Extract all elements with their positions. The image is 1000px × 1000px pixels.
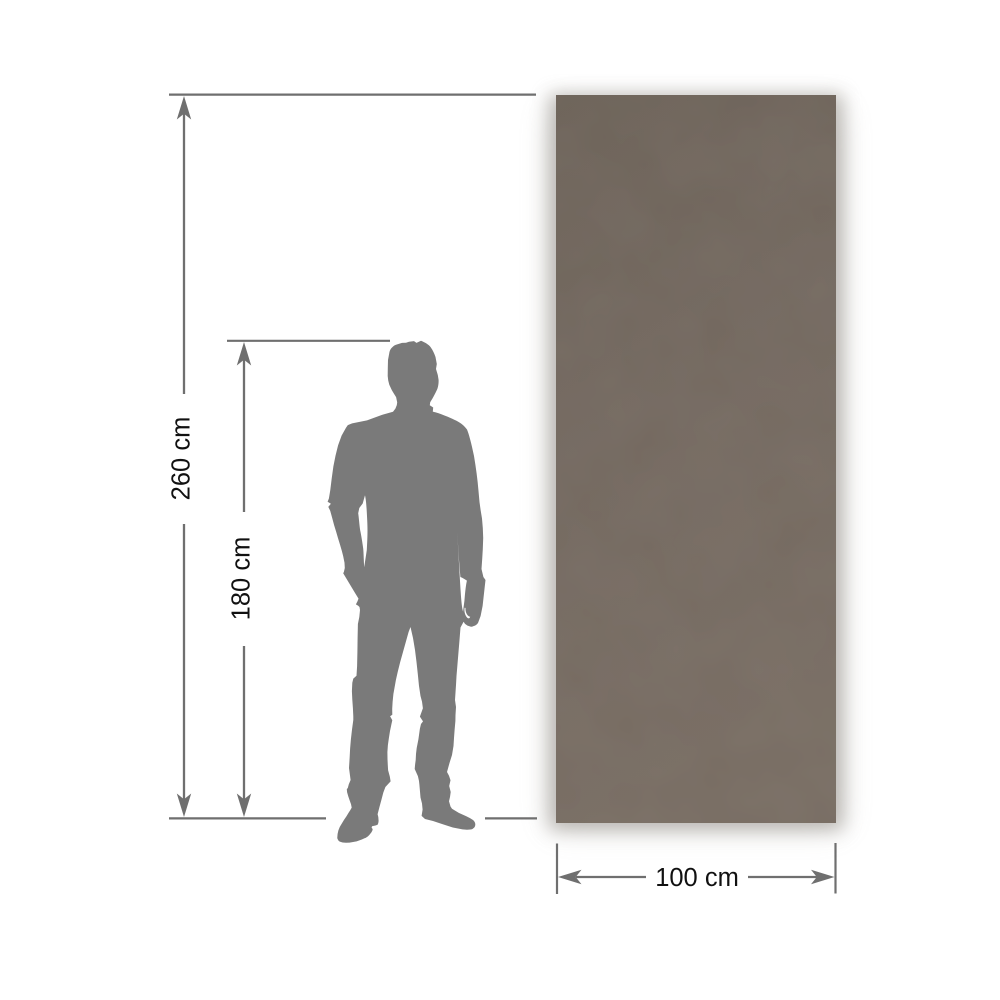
svg-text:100 cm: 100 cm [655, 864, 739, 892]
svg-text:260 cm: 260 cm [168, 417, 196, 501]
svg-text:180 cm: 180 cm [228, 537, 256, 621]
